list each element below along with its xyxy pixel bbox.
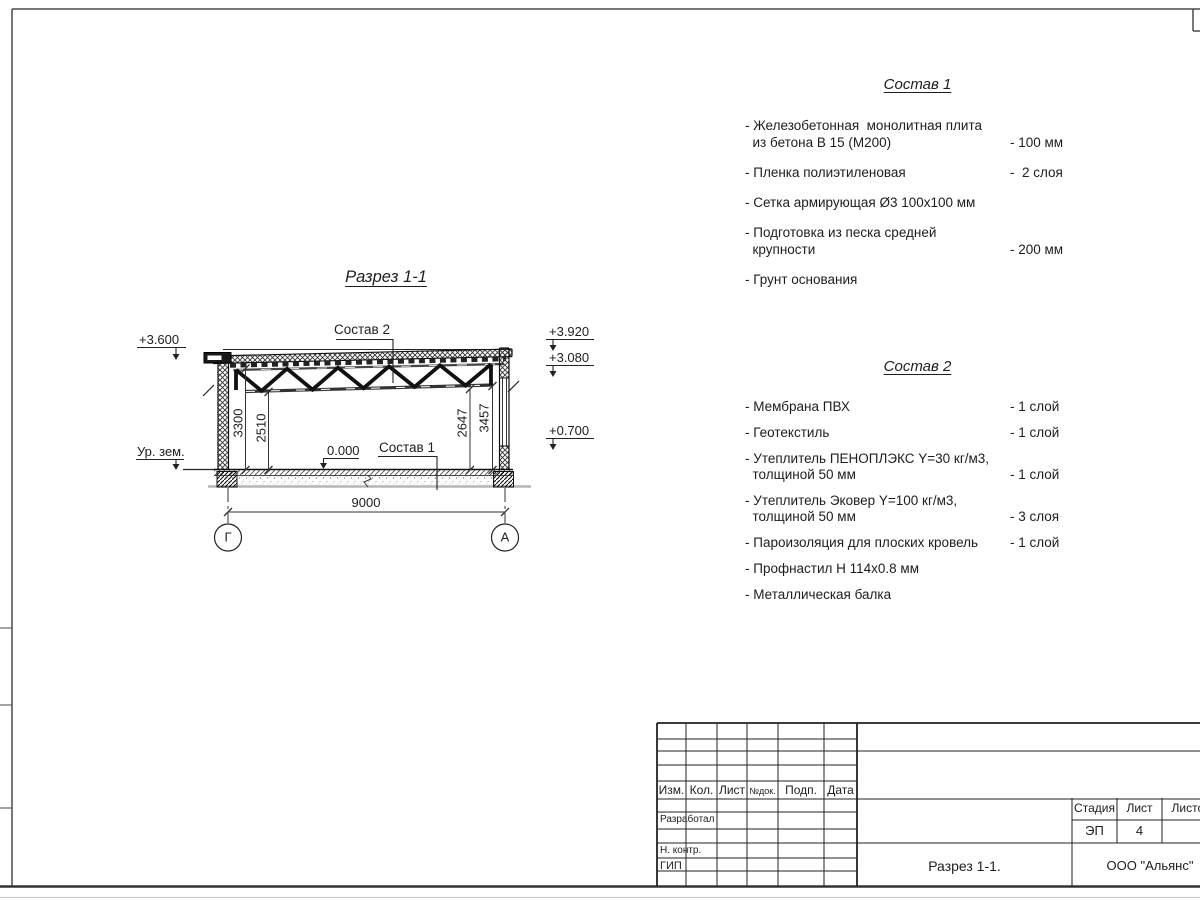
list-item: - Утеплитель ПЕНОПЛЭКС Y=30 кг/м3, толщи… xyxy=(745,451,1090,483)
tb-company: ООО "Альянс" xyxy=(1072,858,1200,873)
item-text: - Сетка армирующая Ø3 100х100 мм xyxy=(745,194,1045,211)
list-item: - Мембрана ПВХ - 1 слой xyxy=(745,399,1090,415)
floor-slab xyxy=(183,470,531,488)
tb-col-data: Дата xyxy=(824,783,857,797)
sostav1-leader-label: Состав 1 xyxy=(379,440,435,455)
item-text: - Утеплитель Эковер Y=100 кг/м3, xyxy=(745,493,1010,509)
item-value: - 1 слой xyxy=(1010,467,1059,483)
list-item: - Пленка полиэтиленовая - 2 слоя xyxy=(745,164,1090,181)
item-value: - 1 слой xyxy=(1010,535,1059,551)
list-item: - Грунт основания xyxy=(745,271,1090,288)
right-wall xyxy=(500,348,510,470)
tb-row-nkontr: Н. контр. xyxy=(660,845,716,856)
tb-col-izm: Изм. xyxy=(657,783,686,797)
roof-assembly xyxy=(204,349,512,366)
ground-level-label: Ур. зем. xyxy=(137,444,185,459)
item-value: - 200 мм xyxy=(1010,241,1063,258)
sostav2-list: Состав 2 - Мембрана ПВХ - 1 слой - Геоте… xyxy=(745,358,1090,613)
tb-col-list: Лист xyxy=(717,783,747,797)
drawing-sheet: Разрез 1-1 Состав 2 Состав 1 +3.600 Ур. … xyxy=(0,0,1200,900)
axis-letter-right: А xyxy=(501,530,510,545)
list-item: - Сетка армирующая Ø3 100х100 мм xyxy=(745,194,1090,211)
item-value: - 3 слоя xyxy=(1010,509,1059,525)
item-text: - Железобетонная монолитная плита xyxy=(745,117,1010,134)
elevation-right-low: +0.700 xyxy=(549,423,589,438)
sostav2-leader-label: Состав 2 xyxy=(334,322,390,337)
zero-level-label: 0.000 xyxy=(327,443,360,458)
item-text: - Пленка полиэтиленовая xyxy=(745,164,1010,181)
left-foundation xyxy=(217,472,237,488)
sostav1-list: Состав 1 - Железобетонная монолитная пли… xyxy=(745,76,1090,301)
tb-row-razrabotal: Разработал xyxy=(660,814,716,825)
item-text: - Профнастил Н 114х0.8 мм xyxy=(745,561,1045,577)
tb-sheets-label: Листов xyxy=(1162,801,1200,815)
item-text: толщиной 50 мм xyxy=(745,467,1010,483)
tb-stage-label: Стадия xyxy=(1072,801,1117,815)
tb-col-podp: Подп. xyxy=(778,783,824,797)
item-text: толщиной 50 мм xyxy=(745,509,1010,525)
tb-col-kol: Кол. xyxy=(686,783,717,797)
item-value: - 100 мм xyxy=(1010,134,1063,151)
elevation-right-top: +3.920 xyxy=(549,324,589,339)
item-text: - Мембрана ПВХ xyxy=(745,399,1010,415)
item-text: - Пароизоляция для плоских кровель xyxy=(745,535,1010,551)
axis-letter-left: Г xyxy=(224,530,231,545)
list-item: - Утеплитель Эковер Y=100 кг/м3, толщино… xyxy=(745,493,1090,525)
dim-2510: 2510 xyxy=(254,414,269,443)
dim-3457: 3457 xyxy=(477,404,492,433)
elevation-right-mid: +3.080 xyxy=(549,350,589,365)
dim-3300: 3300 xyxy=(231,409,246,438)
dim-span-9000: 9000 xyxy=(330,495,402,510)
item-value: - 1 слой xyxy=(1010,425,1059,441)
list-item: - Металлическая балка xyxy=(745,587,1090,603)
item-text: - Геотекстиль xyxy=(745,425,1010,441)
left-wall xyxy=(218,364,229,471)
item-text: - Металлическая балка xyxy=(745,587,1010,603)
item-text: крупности xyxy=(745,241,1010,258)
right-foundation xyxy=(494,472,514,488)
tb-sheet-label: Лист xyxy=(1117,801,1162,815)
list-item: - Подготовка из песка средней крупности … xyxy=(745,224,1090,258)
dim-2647: 2647 xyxy=(455,409,470,438)
section-title: Разрез 1-1 xyxy=(310,268,462,287)
item-text: - Грунт основания xyxy=(745,271,1010,288)
tb-sheet-value: 4 xyxy=(1117,823,1162,838)
list-item: - Геотекстиль - 1 слой xyxy=(745,425,1090,441)
tb-stage-value: ЭП xyxy=(1072,823,1117,838)
sostav2-title: Состав 2 xyxy=(745,358,1090,375)
item-value: - 2 слоя xyxy=(1010,164,1063,181)
list-item: - Железобетонная монолитная плита из бет… xyxy=(745,117,1090,151)
tb-doc-title: Разрез 1-1. xyxy=(857,858,1072,874)
list-item: - Профнастил Н 114х0.8 мм xyxy=(745,561,1090,577)
item-text: из бетона В 15 (М200) xyxy=(745,134,1010,151)
list-item: - Пароизоляция для плоских кровель - 1 с… xyxy=(745,535,1090,551)
tb-row-gip: ГИП xyxy=(660,860,716,872)
item-value: - 1 слой xyxy=(1010,399,1059,415)
elevation-left-top: +3.600 xyxy=(139,332,179,347)
sostav1-title: Состав 1 xyxy=(745,76,1090,93)
item-text: - Подготовка из песка средней xyxy=(745,224,1010,241)
sand-layer xyxy=(216,476,511,485)
roof-truss xyxy=(203,364,519,396)
tb-col-ndok: №док. xyxy=(747,786,778,796)
item-text: - Утеплитель ПЕНОПЛЭКС Y=30 кг/м3, xyxy=(745,451,1010,467)
